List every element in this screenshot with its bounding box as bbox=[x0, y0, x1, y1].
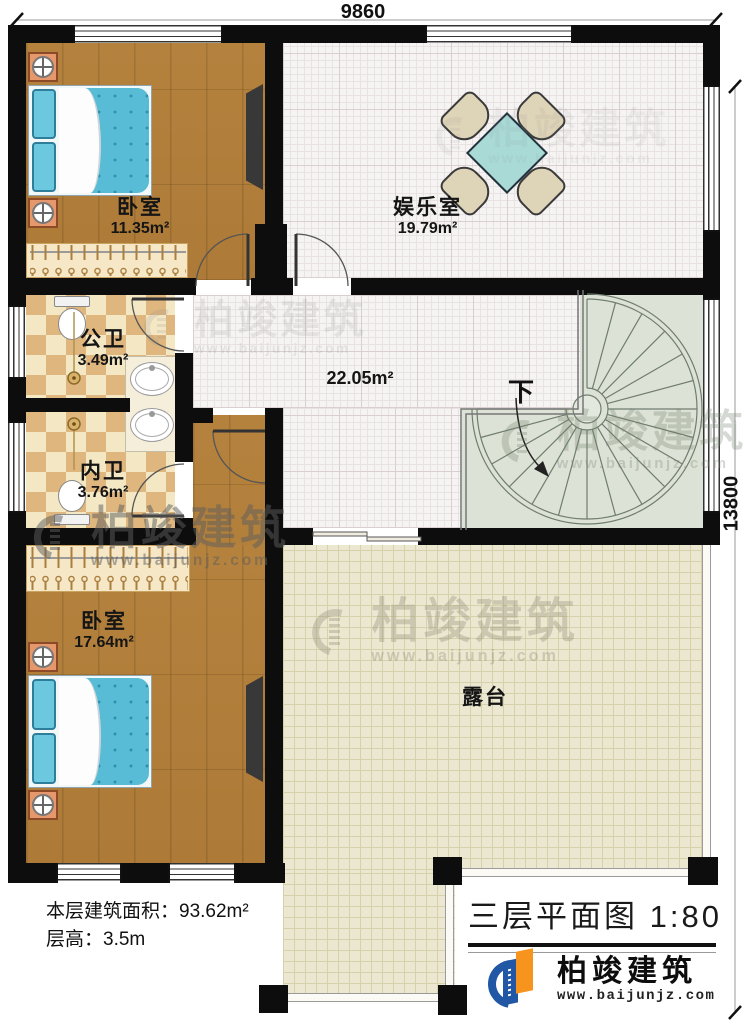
window-bedroom-bottom-1 bbox=[56, 863, 122, 883]
wall-bottom bbox=[8, 863, 285, 883]
sink bbox=[130, 408, 174, 442]
wall-bed2-top-b bbox=[265, 408, 283, 423]
room-label-hall-area: 22.05m² bbox=[300, 368, 420, 388]
nightstand bbox=[28, 790, 58, 820]
toilet-tank bbox=[54, 296, 90, 307]
terrace-column-2 bbox=[688, 857, 718, 885]
closet bbox=[26, 243, 188, 278]
wall-bath-right-b bbox=[175, 518, 193, 528]
wall-bath2-bottom bbox=[8, 528, 196, 545]
terrace-railing-bottom bbox=[462, 868, 703, 877]
building-area-text: 本层建筑面积：93.62m² bbox=[46, 898, 249, 926]
nightstand bbox=[28, 198, 58, 228]
wall-bath-mid bbox=[26, 398, 130, 412]
brand-name: 柏竣建筑 bbox=[557, 956, 715, 988]
wall-stair-bottom bbox=[418, 528, 703, 545]
wall-bath-right-a bbox=[175, 353, 193, 462]
stair-floor-upper bbox=[580, 290, 703, 408]
closet bbox=[26, 545, 190, 592]
title-block: 三层平面图 1:80 bbox=[468, 891, 716, 953]
floor-info: 本层建筑面积：93.62m² 层高：3.5m bbox=[46, 898, 249, 953]
terrace-floor-ext bbox=[283, 870, 455, 995]
room-label-private-bath: 内卫 3.76m² bbox=[48, 460, 158, 501]
lamp-icon bbox=[32, 56, 54, 78]
bed-sheet bbox=[59, 678, 101, 785]
stair-floor-lower bbox=[462, 408, 703, 528]
room-label-entertainment: 娱乐室 19.79m² bbox=[360, 196, 495, 237]
stair-direction-label: 下 bbox=[508, 372, 534, 409]
pillow bbox=[32, 733, 56, 784]
dimension-right-label: 13800 bbox=[721, 462, 744, 546]
wall-bed2-top-a bbox=[193, 408, 213, 423]
bed bbox=[28, 675, 152, 788]
window-entertainment-top bbox=[425, 25, 573, 43]
room-label-terrace: 露台 bbox=[425, 686, 545, 710]
window-bedroom-top bbox=[73, 25, 223, 43]
pillow bbox=[32, 142, 56, 192]
pillow bbox=[32, 679, 56, 730]
brand-logo: 柏竣建筑 www.baijunjz.com bbox=[488, 948, 715, 1012]
window-bedroom-bottom-2 bbox=[168, 863, 236, 883]
tap-icon bbox=[149, 411, 155, 417]
wall-terrace-stub bbox=[283, 528, 313, 545]
plan-title: 三层平面图 1:80 bbox=[468, 891, 716, 936]
floor-plan: 9860 13800 卧室 11.35m² 娱乐室 19.79m² 公卫 3.4… bbox=[0, 0, 750, 1024]
room-label-bedroom-bottom: 卧室 17.64m² bbox=[44, 610, 164, 651]
brand-website: www.baijunjz.com bbox=[557, 988, 715, 1004]
nightstand bbox=[28, 52, 58, 82]
toilet-tank bbox=[54, 514, 90, 525]
room-label-bedroom-top: 卧室 11.35m² bbox=[80, 196, 200, 237]
terrace-column-4 bbox=[259, 985, 288, 1013]
wall-main-h-c bbox=[351, 278, 720, 295]
pillow bbox=[32, 89, 56, 139]
room-label-public-bath: 公卫 3.49m² bbox=[48, 328, 158, 369]
window-public-bath-left bbox=[8, 305, 26, 379]
tv bbox=[246, 84, 263, 190]
bed-sheet bbox=[59, 88, 101, 193]
bed bbox=[28, 85, 152, 196]
terrace-column-1 bbox=[433, 857, 462, 885]
dimension-top-label: 9860 bbox=[333, 1, 393, 24]
terrace-column-3 bbox=[438, 985, 467, 1015]
lamp-icon bbox=[32, 202, 54, 224]
title-underline-thick bbox=[468, 943, 716, 947]
wall-main-h-a bbox=[8, 278, 196, 295]
terrace-ext-railing-right bbox=[445, 883, 454, 993]
tv bbox=[246, 676, 263, 782]
window-stair-right bbox=[703, 298, 720, 513]
terrace-ext-railing-bottom bbox=[288, 993, 440, 1002]
wall-bed2-right bbox=[265, 423, 283, 865]
window-entertainment-right bbox=[703, 85, 720, 232]
sliding-door bbox=[313, 532, 421, 541]
wall-door-pillar bbox=[255, 224, 287, 280]
hall-floor-lower bbox=[283, 408, 462, 528]
lamp-icon bbox=[32, 794, 54, 816]
brand-logo-icon bbox=[488, 948, 548, 1012]
terrace-railing-right bbox=[702, 545, 711, 858]
window-private-bath-left bbox=[8, 421, 26, 513]
wall-main-h-b bbox=[251, 278, 293, 295]
floor-height-text: 层高：3.5m bbox=[46, 926, 249, 954]
